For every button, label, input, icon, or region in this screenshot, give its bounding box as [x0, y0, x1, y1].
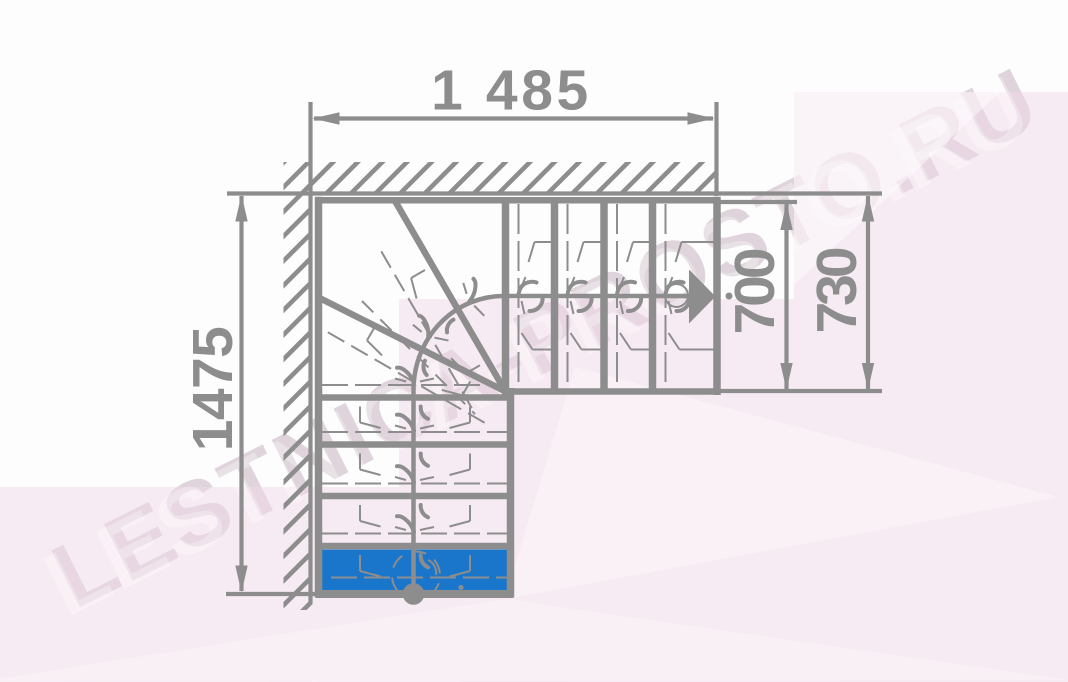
- svg-text:1 485: 1 485: [431, 59, 592, 123]
- svg-text:1475: 1475: [181, 327, 245, 451]
- svg-text:700: 700: [723, 249, 787, 334]
- svg-text:730: 730: [805, 248, 869, 333]
